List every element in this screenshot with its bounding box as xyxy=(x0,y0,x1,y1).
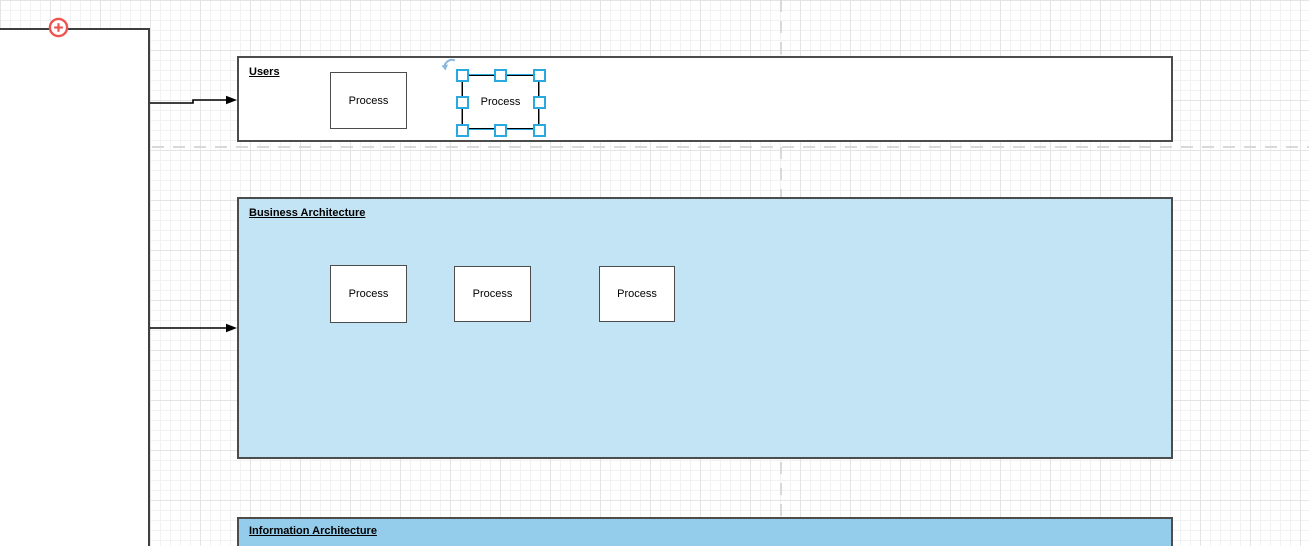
connector-arrow-to-business[interactable] xyxy=(150,324,237,332)
process-node-label: Process xyxy=(349,288,389,300)
process-node-label: Process xyxy=(349,95,389,107)
process-node-label: Process xyxy=(481,96,521,108)
page-break-horizontal xyxy=(152,146,1309,148)
lane-information-architecture[interactable]: Information Architecture xyxy=(237,517,1173,546)
lane-business-architecture-label: Business Architecture xyxy=(249,207,365,219)
resize-handle-e[interactable] xyxy=(533,96,546,109)
connector-arrow-to-users[interactable] xyxy=(150,96,237,104)
resize-handle-ne[interactable] xyxy=(533,69,546,82)
resize-handle-se[interactable] xyxy=(533,124,546,137)
process-node[interactable]: Process xyxy=(330,72,407,129)
process-node-label: Process xyxy=(617,288,657,300)
resize-handle-sw[interactable] xyxy=(456,124,469,137)
process-node[interactable]: Process xyxy=(599,266,675,322)
resize-handle-s[interactable] xyxy=(494,124,507,137)
resize-handle-w[interactable] xyxy=(456,96,469,109)
lane-business-architecture[interactable]: Business Architecture xyxy=(237,197,1173,459)
lane-users-label: Users xyxy=(249,66,280,78)
process-node[interactable]: Process xyxy=(454,266,531,322)
process-node-selected[interactable]: Process xyxy=(462,75,539,129)
left-edge-container[interactable] xyxy=(0,28,150,546)
diagram-canvas[interactable]: Users Business Architecture Information … xyxy=(0,0,1309,546)
plus-circle-icon[interactable] xyxy=(48,17,69,38)
process-node-label: Process xyxy=(473,288,513,300)
resize-handle-n[interactable] xyxy=(494,69,507,82)
process-node[interactable]: Process xyxy=(330,265,407,323)
rotate-arrow-icon[interactable] xyxy=(440,55,458,72)
lane-information-architecture-label: Information Architecture xyxy=(249,525,377,537)
